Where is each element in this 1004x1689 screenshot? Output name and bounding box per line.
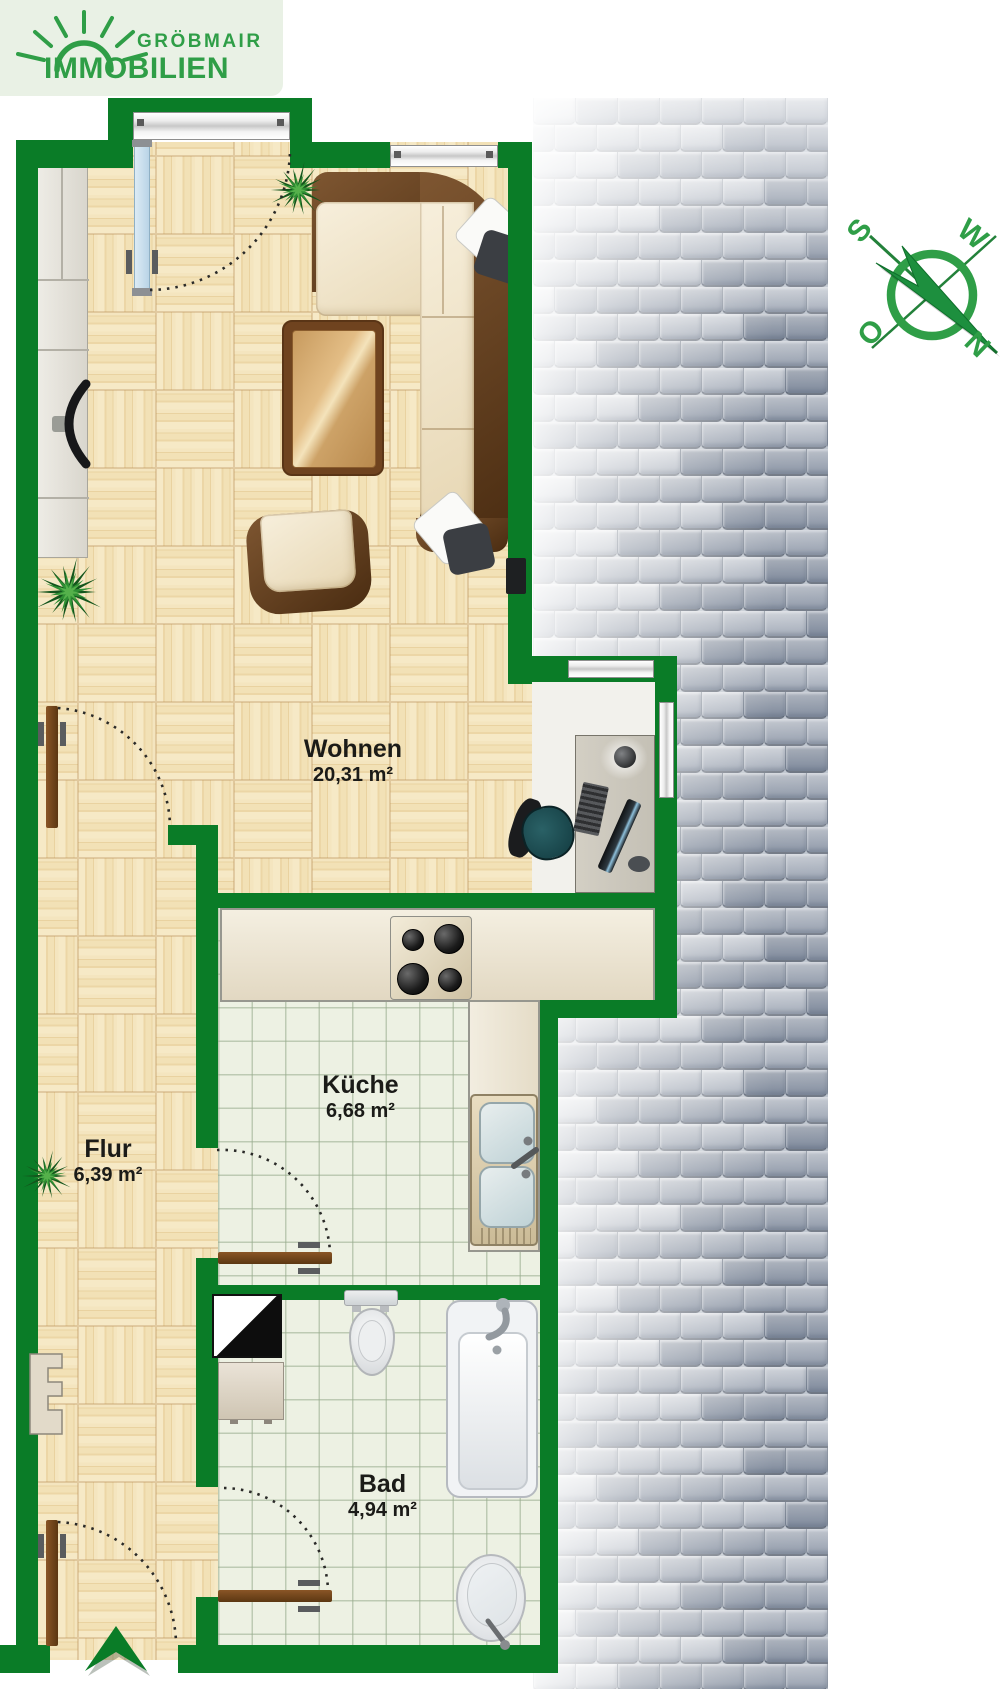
bathtub [446, 1300, 538, 1498]
room-name: Wohnen [253, 736, 453, 763]
window-frame-cap [137, 119, 144, 126]
sofa-seam [422, 428, 474, 430]
door-handle [38, 1534, 44, 1558]
wall [16, 140, 38, 1673]
compass-ring [891, 254, 973, 336]
door-cap [132, 140, 152, 147]
toilet-tank [344, 1290, 398, 1306]
wall [16, 140, 108, 168]
armchair [245, 508, 374, 616]
bathtub-interior [458, 1332, 528, 1490]
door-handle [298, 1580, 320, 1586]
entry-glass-door [134, 142, 150, 292]
sink-drainboard [481, 1228, 531, 1244]
sideboard-divider [35, 279, 89, 281]
room-label-flur: Flur 6,39 m² [34, 1136, 182, 1187]
flur-wohnen-door [46, 706, 58, 828]
kueche-door [218, 1252, 332, 1264]
room-label-wohnen: Wohnen 20,31 m² [253, 736, 453, 787]
sideboard-divider [61, 167, 63, 279]
desk-lamp [614, 746, 636, 768]
burner [397, 963, 429, 995]
washbasin-bowl [467, 1563, 517, 1627]
door-handle [298, 1606, 320, 1612]
sink-basin [479, 1166, 535, 1228]
sofa-seam [442, 206, 444, 314]
room-area: 6,68 m² [268, 1099, 453, 1123]
wall [540, 1000, 677, 1018]
bathroom-cabinet [218, 1362, 284, 1420]
room-label-bad: Bad 4,94 m² [295, 1471, 470, 1522]
room-name: Küche [268, 1072, 453, 1099]
door-handle [298, 1242, 320, 1248]
window-frame-cap [486, 151, 493, 158]
plant [266, 158, 330, 222]
compass-letter-west: W [950, 213, 994, 257]
room-area: 6,39 m² [34, 1163, 182, 1187]
sideboard-divider [35, 349, 89, 351]
living-room-window [390, 145, 498, 167]
door-handle [298, 1268, 320, 1274]
wall [0, 1645, 50, 1673]
burner [438, 968, 462, 992]
window-frame-cap [394, 151, 401, 158]
niche-side-window [659, 702, 674, 798]
bad-door [218, 1590, 332, 1602]
brand-logo: GRÖBMAIR IMMOBILIEN [0, 0, 283, 96]
wall-speaker [506, 558, 526, 594]
door-handle [60, 1534, 66, 1558]
wall [196, 1597, 218, 1645]
burner [434, 924, 464, 954]
door-cap [132, 288, 152, 296]
niche-window [568, 660, 654, 678]
room-area: 4,94 m² [295, 1498, 470, 1522]
room-name: Flur [34, 1136, 182, 1163]
coffee-table-top [292, 330, 376, 468]
wall [196, 825, 218, 1148]
sofa-pillow [442, 522, 497, 577]
toilet-bowl-inner [358, 1320, 386, 1362]
cabinet-foot [264, 1420, 272, 1424]
brand-name-top: GRÖBMAIR [137, 31, 263, 53]
sofa-seam [422, 316, 474, 318]
sofa-cushion [420, 202, 474, 520]
wall [178, 1645, 558, 1673]
cabinet-foot [230, 1420, 238, 1424]
sideboard-divider [35, 497, 89, 499]
tv-stand [52, 416, 68, 432]
washbasin [456, 1554, 526, 1642]
door-handle [152, 250, 158, 274]
entrance-door [46, 1520, 58, 1646]
brand-name-bottom: IMMOBILIEN [44, 52, 229, 86]
armchair-cushion [260, 509, 357, 593]
sink-basin [479, 1102, 535, 1164]
wall [540, 1000, 558, 1673]
room-label-kueche: Küche 6,68 m² [268, 1072, 453, 1123]
sideboard [34, 166, 88, 558]
door-handle [126, 250, 132, 274]
entry-sidelight-window [133, 112, 290, 140]
compass-letter-north: N [957, 325, 996, 365]
wall [108, 98, 133, 168]
door-handle [38, 722, 44, 746]
wall [218, 893, 677, 908]
plant [30, 552, 108, 632]
compass-letter-east: O [851, 313, 892, 353]
kitchen-sink [470, 1094, 538, 1246]
coffee-table [282, 320, 384, 476]
wall [508, 142, 532, 684]
shaft-symbol [212, 1294, 282, 1358]
floor-plan: Wohnen 20,31 m² Küche 6,68 m² Flur 6,39 … [0, 0, 1004, 1689]
wall [196, 1258, 218, 1285]
burner [402, 929, 424, 951]
room-area: 20,31 m² [253, 763, 453, 787]
compass-letter-south: S [840, 213, 879, 250]
monitor-base [628, 856, 650, 872]
door-handle [60, 722, 66, 746]
room-name: Bad [295, 1471, 470, 1498]
window-frame-cap [277, 119, 284, 126]
